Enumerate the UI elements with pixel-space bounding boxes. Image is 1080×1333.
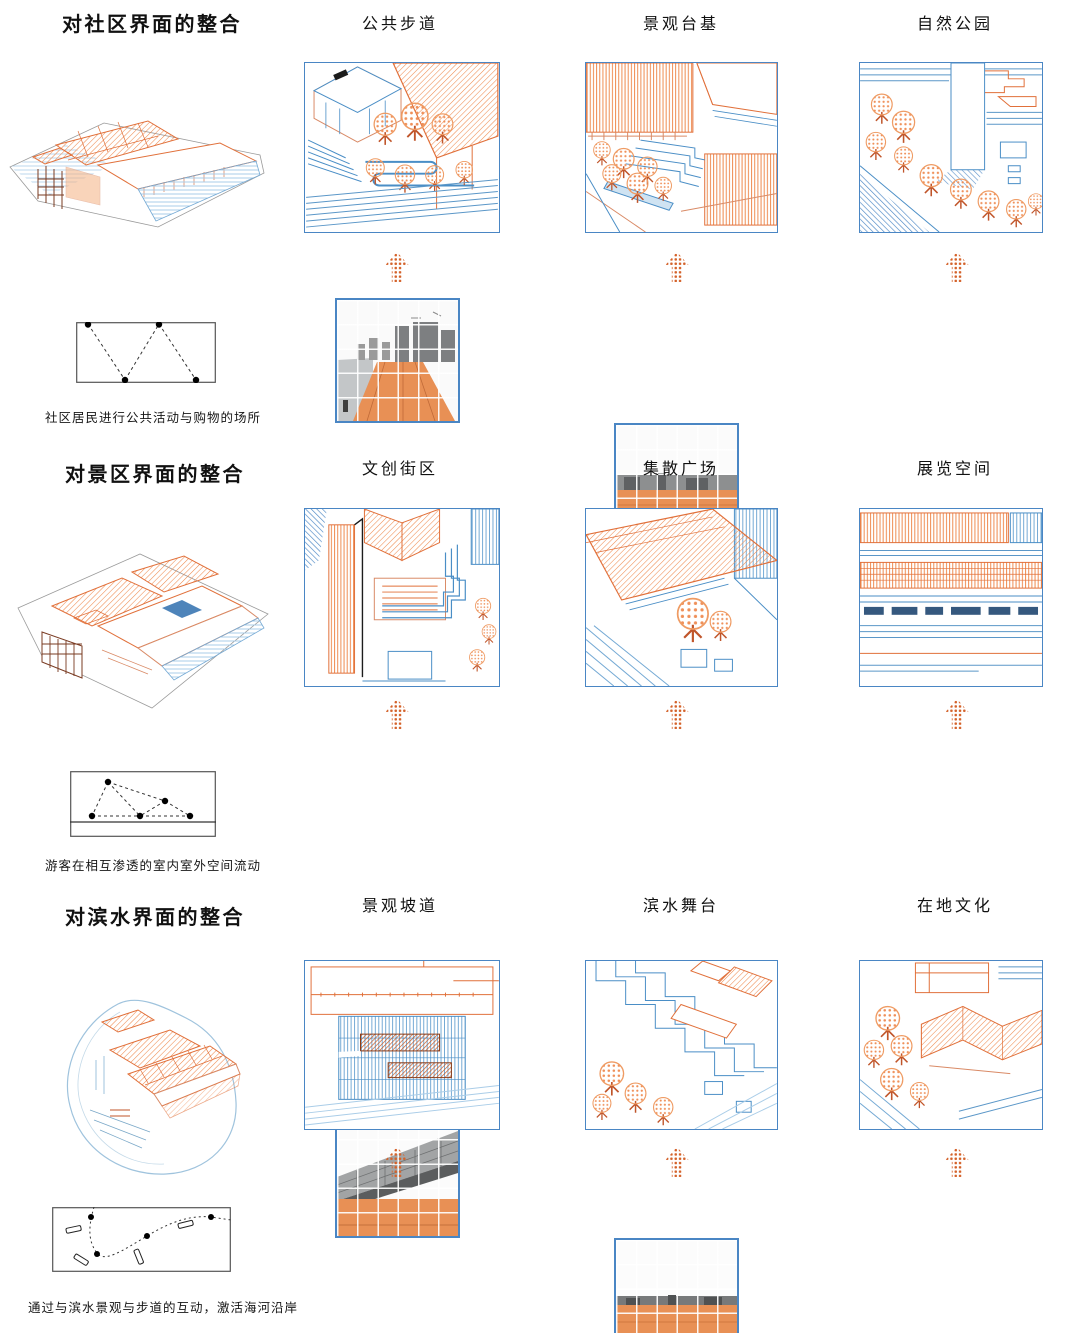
concept-diagram-svg <box>70 771 216 837</box>
concept-diagram-waterfront <box>52 1207 231 1272</box>
reference-photo-svg <box>616 1240 737 1333</box>
detail-drawing-svg <box>305 63 499 232</box>
concept-diagram-community <box>76 322 216 383</box>
axonometric-drawing-waterfront <box>50 990 260 1182</box>
axonometric-svg <box>50 990 260 1182</box>
column-title: 集散广场 <box>584 455 778 479</box>
detail-drawing-creative-block <box>304 508 500 687</box>
detail-drawing-svg <box>586 509 777 686</box>
axonometric-svg <box>8 105 270 250</box>
detail-drawing-nature-park <box>859 62 1043 233</box>
detail-drawing-landscape-platform <box>585 62 778 233</box>
detail-drawing-local-culture <box>859 960 1043 1130</box>
detail-drawing-svg <box>305 961 499 1129</box>
up-arrow-icon <box>944 252 970 282</box>
column-title: 景观台基 <box>584 10 778 34</box>
detail-drawing-svg <box>860 509 1042 686</box>
column-title: 展览空间 <box>858 455 1052 479</box>
section-caption: 游客在相互渗透的室内室外空间流动 <box>45 855 261 874</box>
detail-drawing-public-walkway <box>304 62 500 233</box>
column-title: 自然公园 <box>858 10 1052 34</box>
detail-drawing-svg <box>860 961 1042 1129</box>
reference-photo-svg <box>337 300 458 421</box>
column-title: 在地文化 <box>858 892 1052 916</box>
up-arrow-icon <box>944 699 970 729</box>
up-arrow-icon <box>944 1147 970 1177</box>
concept-diagram-svg <box>76 322 216 383</box>
reference-photo-public-walkway <box>335 298 460 423</box>
detail-drawing-svg <box>586 961 777 1129</box>
section-caption: 通过与滨水景观与步道的互动，激活海河沿岸 <box>28 1297 298 1316</box>
section-caption: 社区居民进行公共活动与购物的场所 <box>45 407 261 426</box>
section-scenic: 对景区界面的整合 <box>0 375 1080 750</box>
section-title: 对社区界面的整合 <box>62 8 242 37</box>
column-title: 文创街区 <box>303 455 497 479</box>
detail-drawing-gathering-plaza <box>585 508 778 687</box>
concept-diagram-scenic <box>70 771 216 837</box>
detail-drawing-svg <box>860 63 1042 232</box>
detail-drawing-svg <box>305 509 499 686</box>
column-title: 公共步道 <box>303 10 497 34</box>
detail-drawing-exhibition-space <box>859 508 1043 687</box>
axonometric-svg <box>12 548 274 716</box>
axonometric-drawing-community <box>8 105 270 250</box>
column-title: 景观坡道 <box>303 892 497 916</box>
section-title: 对景区界面的整合 <box>65 458 245 487</box>
presentation-board: 对社区界面的整合 社区居民进行公共活动 <box>0 0 1080 1333</box>
concept-diagram-svg <box>52 1207 231 1272</box>
section-community: 对社区界面的整合 社区居民进行公共活动 <box>0 0 1080 375</box>
section-title: 对滨水界面的整合 <box>65 901 245 930</box>
column-title: 滨水舞台 <box>584 892 778 916</box>
axonometric-drawing-scenic <box>12 548 274 716</box>
up-arrow-icon <box>664 1147 690 1177</box>
detail-drawing-landscape-ramp <box>304 960 500 1130</box>
reference-photo-gathering-plaza <box>614 1238 739 1333</box>
detail-drawing-svg <box>586 63 777 232</box>
detail-drawing-waterfront-stage <box>585 960 778 1130</box>
